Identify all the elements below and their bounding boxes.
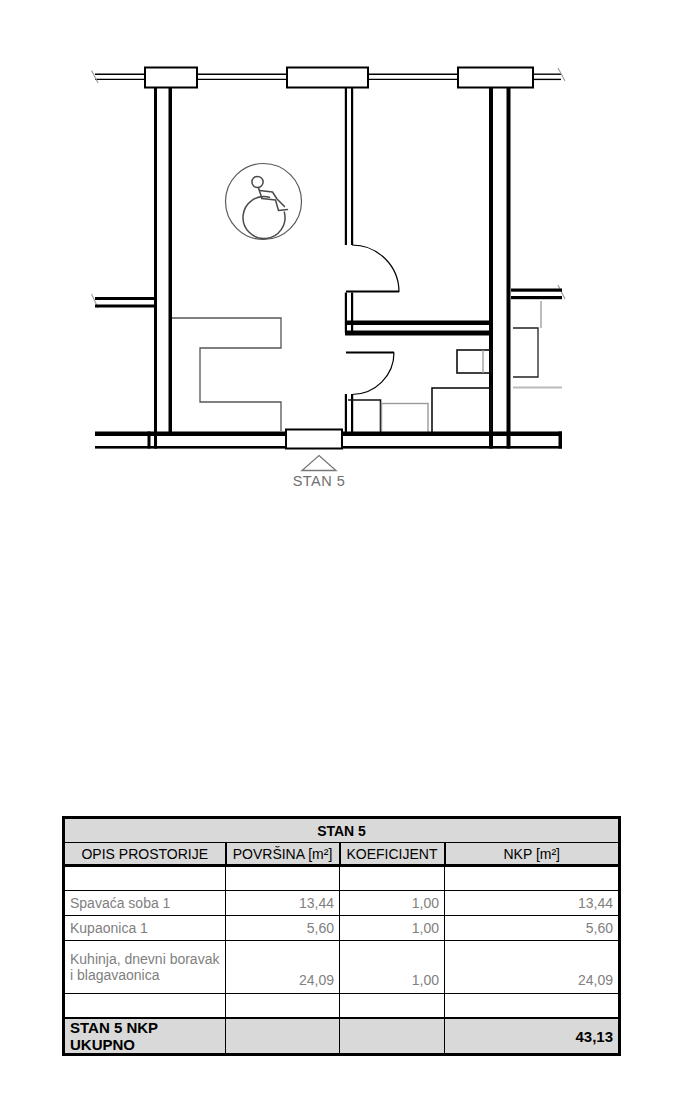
apartment-label: STAN 5 (293, 473, 346, 489)
room-name: Kupaonica 1 (64, 916, 226, 941)
table-total-row: STAN 5 NKP UKUPNO 43,13 (64, 1018, 620, 1055)
area-table: STAN 5 OPIS PROSTORIJE POVRŠINA [m²] KOE… (62, 816, 621, 1056)
room-povrsina: 13,44 (226, 891, 340, 916)
spacer-cell (340, 994, 445, 1019)
bathroom-wall (345, 321, 493, 336)
spacer-cell (226, 866, 340, 891)
room-nkp: 5,60 (445, 916, 620, 941)
header-koeficijent: KOEFICIJENT (340, 843, 445, 866)
room-koeficijent: 1,00 (340, 916, 445, 941)
floor-plan: STAN 5 (0, 0, 680, 520)
kitchen-counter (172, 318, 281, 431)
sink (457, 350, 491, 373)
spacer-cell (445, 994, 620, 1019)
left-wall (154, 87, 172, 449)
spacer-cell (64, 866, 226, 891)
room-povrsina: 5,60 (226, 916, 340, 941)
total-povrsina-empty (226, 1018, 340, 1055)
header-povrsina: POVRŠINA [m²] (226, 843, 340, 866)
right-wall (489, 87, 511, 449)
spacer-cell (340, 866, 445, 891)
toilet (382, 404, 429, 434)
facade-pillars (145, 68, 533, 88)
spacer-row (64, 866, 620, 891)
left-wall-stub (95, 297, 155, 308)
total-label: STAN 5 NKP UKUPNO (64, 1018, 226, 1055)
total-nkp: 43,13 (445, 1018, 620, 1055)
room-name: Spavaća soba 1 (64, 891, 226, 916)
right-wall-stub (511, 289, 562, 300)
header-opis-prostorije: OPIS PROSTORIJE (64, 843, 226, 866)
room-row-kupaonica: Kupaonica 1 5,60 1,00 5,60 (64, 916, 620, 941)
room-koeficijent: 1,00 (340, 941, 445, 994)
total-koeficijent-empty (340, 1018, 445, 1055)
washing-machine (432, 388, 491, 433)
header-nkp: NKP [m²] (445, 843, 620, 866)
spacer-cell (226, 994, 340, 1019)
room-nkp: 24,09 (445, 941, 620, 994)
adjacent-unit-fixtures (513, 301, 562, 388)
entrance-door (286, 430, 342, 449)
room-nkp: 13,44 (445, 891, 620, 916)
spacer-cell (64, 994, 226, 1019)
room-row-spavaca-soba: Spavaća soba 1 13,44 1,00 13,44 (64, 891, 620, 916)
break-marks (92, 68, 566, 308)
middle-partition-wall (345, 87, 353, 436)
room-row-kuhinja: Kuhinja, dnevni boravak i blagavaonica 2… (64, 941, 620, 994)
table-header-row: OPIS PROSTORIJE POVRŠINA [m²] KOEFICIJEN… (64, 843, 620, 866)
entrance-marker-triangle (302, 456, 336, 471)
wheelchair-icon (226, 164, 302, 240)
spacer-row (64, 994, 620, 1019)
bedroom-door (346, 245, 399, 292)
spacer-cell (445, 866, 620, 891)
table-title-row: STAN 5 (64, 818, 620, 843)
room-name: Kuhinja, dnevni boravak i blagavaonica (64, 941, 226, 994)
room-povrsina: 24,09 (226, 941, 340, 994)
room-koeficijent: 1,00 (340, 891, 445, 916)
table-title: STAN 5 (64, 818, 620, 843)
bathroom-door (346, 353, 394, 395)
page: STAN 5 STAN 5 OPIS PROSTORIJE POVRŠINA [… (0, 0, 680, 1104)
